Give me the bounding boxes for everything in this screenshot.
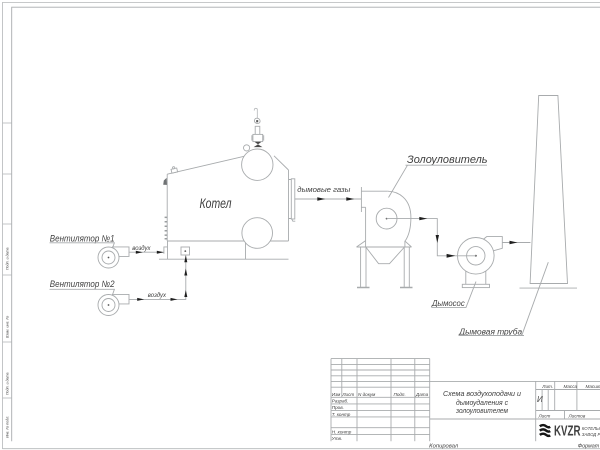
- svg-text:Лист: Лист: [538, 414, 551, 419]
- svg-text:Лит.: Лит.: [541, 384, 553, 389]
- svg-text:Листов: Листов: [568, 414, 586, 419]
- svg-text:Масштаб: Масштаб: [586, 384, 600, 389]
- svg-text:Подп. и дата: Подп. и дата: [6, 248, 10, 271]
- svg-text:воздух: воздух: [132, 246, 151, 252]
- svg-text:Формат А4: Формат А4: [578, 444, 600, 450]
- svg-text:Схема воздухоподачи и: Схема воздухоподачи и: [443, 389, 522, 398]
- svg-text:дымовые газы: дымовые газы: [297, 185, 350, 194]
- svg-text:ЗАВОД РОС: ЗАВОД РОС: [582, 432, 600, 437]
- svg-text:золоуловителем: золоуловителем: [455, 406, 509, 415]
- svg-text:Лист: Лист: [341, 392, 354, 397]
- svg-text:Инв. № подл.: Инв. № подл.: [6, 416, 10, 438]
- svg-text:И: И: [537, 395, 543, 404]
- svg-text:Вентилятор №2: Вентилятор №2: [50, 279, 115, 289]
- svg-text:Дата: Дата: [415, 392, 429, 397]
- svg-text:Утв.: Утв.: [332, 436, 342, 441]
- svg-text:Пров.: Пров.: [332, 405, 344, 410]
- svg-text:Т. контр: Т. контр: [332, 412, 351, 417]
- svg-text:Дымовая труба: Дымовая труба: [458, 326, 522, 336]
- svg-text:Подп. и дата: Подп. и дата: [6, 373, 10, 396]
- svg-text:Разраб.: Разраб.: [332, 399, 349, 404]
- svg-text:Золоуловитель: Золоуловитель: [407, 154, 488, 166]
- svg-text:KVZR: KVZR: [554, 424, 581, 440]
- svg-text:Копировал: Копировал: [429, 444, 458, 450]
- svg-text:воздух: воздух: [148, 293, 167, 299]
- svg-text:Масса: Масса: [564, 384, 578, 389]
- svg-text:Котел: Котел: [200, 196, 232, 211]
- svg-text:N докум: N докум: [358, 392, 376, 397]
- svg-text:Дымосос: Дымосос: [431, 298, 465, 308]
- svg-text:Вентилятор №1: Вентилятор №1: [50, 233, 115, 243]
- svg-text:КОТЕЛЬНЫЙ: КОТЕЛЬНЫЙ: [582, 426, 600, 431]
- svg-text:Подп.: Подп.: [394, 392, 406, 397]
- svg-text:Н. контр: Н. контр: [332, 429, 352, 434]
- svg-text:Взам. инв. №: Взам. инв. №: [6, 316, 10, 338]
- svg-text:Изм: Изм: [332, 392, 341, 397]
